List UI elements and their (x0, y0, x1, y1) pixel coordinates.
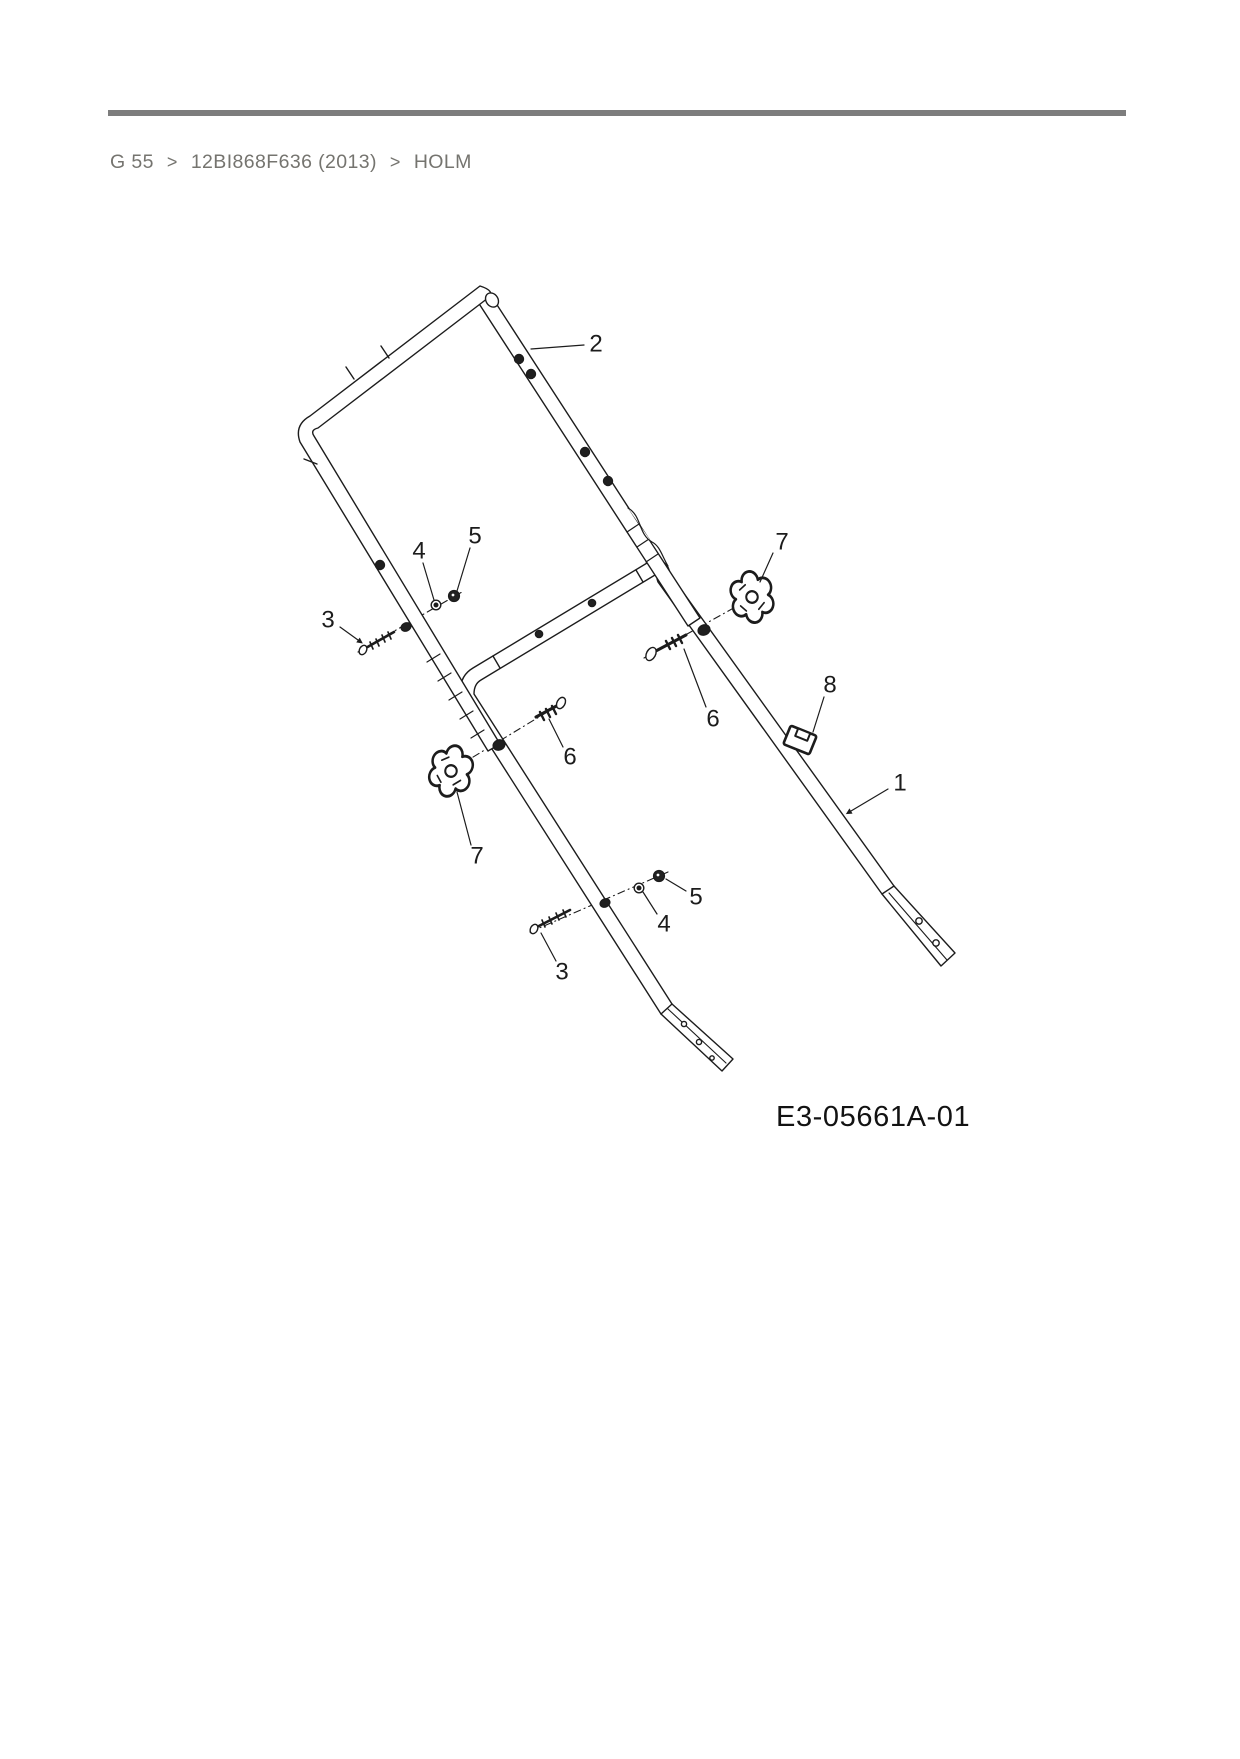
callout-leader (340, 627, 358, 640)
callout-label-7: 7 (775, 529, 788, 556)
callout-leader (643, 892, 657, 914)
washer-lower (634, 883, 644, 893)
callout-label-3: 3 (321, 607, 334, 634)
carriage-bolt-left (536, 696, 567, 720)
parts-diagram: 2345768167543 (0, 0, 1240, 1754)
callout-label-6: 6 (706, 706, 719, 733)
upper-handle-tube (298, 286, 700, 751)
nut-upper (449, 591, 460, 602)
lower-handle-tube (460, 560, 955, 1071)
callout-leader (666, 879, 686, 891)
screw-lower (529, 910, 570, 935)
callout-leader (457, 792, 471, 845)
leader-arrowhead (356, 638, 363, 644)
nut-lower (654, 871, 665, 882)
callout-leader (851, 789, 888, 811)
carriage-bolt-right (644, 635, 686, 662)
callout-label-3: 3 (555, 959, 568, 986)
callout-leader (531, 345, 584, 349)
callout-leader (813, 697, 824, 732)
assembly-axis-lines (358, 592, 748, 932)
callout-leader (541, 933, 556, 961)
callout-label-5: 5 (468, 523, 481, 550)
callout-leader (684, 649, 706, 707)
callout-label-1: 1 (893, 770, 906, 797)
tube-bolts (376, 355, 613, 570)
callout-label-8: 8 (823, 672, 836, 699)
callout-label-7: 7 (470, 843, 483, 870)
diagram-code: E3-05661A-01 (776, 1101, 970, 1134)
star-knob-right (728, 569, 775, 626)
callout-leader (423, 563, 434, 600)
callout-leader (549, 719, 563, 747)
callout-label-6: 6 (563, 744, 576, 771)
handle-exploded-diagram: 2345768167543 (0, 0, 1240, 1754)
screw-upper (358, 632, 394, 656)
callout-label-4: 4 (412, 538, 425, 565)
callout-leader (457, 548, 470, 591)
star-knob-left (426, 742, 476, 801)
callout-label-4: 4 (657, 911, 670, 938)
callout-label-2: 2 (589, 331, 602, 358)
callout-layer: 2345768167543 (321, 331, 906, 986)
washer-upper (431, 600, 441, 610)
callout-label-5: 5 (689, 884, 702, 911)
